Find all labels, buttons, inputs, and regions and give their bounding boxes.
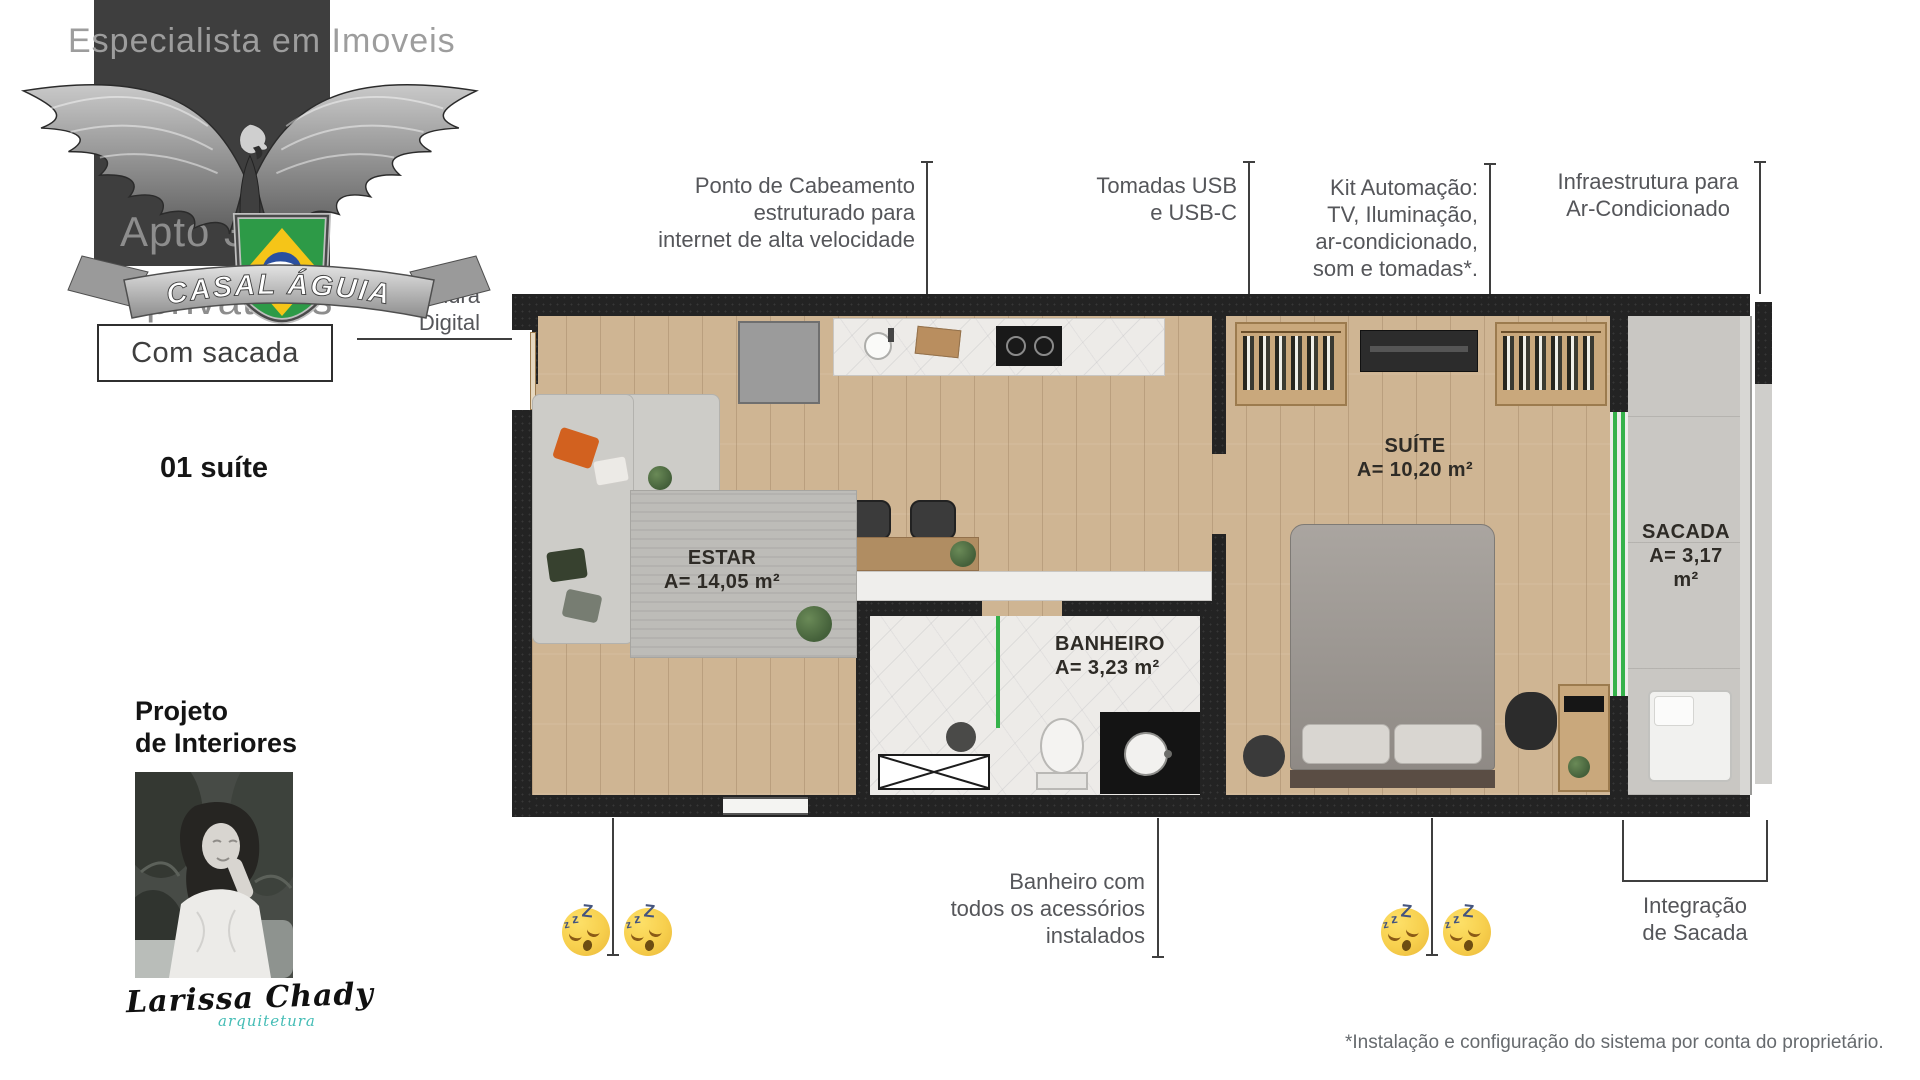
pointer-tick (1152, 956, 1164, 958)
callout-line: ar-condicionado, (1275, 228, 1478, 255)
entry-door-opening (512, 330, 532, 410)
floor-plan: ESTAR A= 14,05 m² BANHEIRO A= 3,23 m² SU… (512, 294, 1772, 817)
callout-infraestrutura-ar: Infraestrutura para Ar-Condicionado (1548, 168, 1748, 222)
bed-headboard (1290, 770, 1495, 788)
emoji-z: z (1452, 912, 1460, 926)
console-soundbar (1370, 346, 1468, 352)
callout-line: todos os acessórios (925, 895, 1145, 922)
callout-banheiro-acessorios: Banheiro com todos os acessórios instala… (925, 868, 1145, 949)
floorplan-marketing-page: Especialista em Imoveis Apto 35m² privat… (0, 0, 1920, 1080)
badge-label: Com sacada (131, 337, 299, 370)
sleeping-face-emoji: z z Z (624, 908, 672, 956)
wall-suite-divider-upper (1212, 316, 1226, 454)
cooktop-burner (1034, 336, 1054, 356)
integracao-bracket (1622, 820, 1768, 882)
closet-left (1235, 322, 1347, 406)
toilet-tank (1036, 772, 1088, 790)
room-label-estar: ESTAR A= 14,05 m² (642, 546, 802, 594)
emoji-z: z (1390, 912, 1398, 926)
callout-line: som e tomadas*. (1275, 255, 1478, 282)
project-title: Projeto de Interiores (135, 695, 297, 759)
wall-balcony-bottom (1610, 696, 1628, 795)
wall-balcony-top (1610, 316, 1628, 412)
closet-right (1495, 322, 1607, 406)
callout-line: Infraestrutura para (1548, 168, 1748, 195)
callout-integracao-sacada: Integração de Sacada (1617, 892, 1773, 946)
bed-pillow (1394, 724, 1482, 764)
sleeping-face-emoji: z z Z (1381, 908, 1429, 956)
callout-kit-automacao: Kit Automação: TV, Iluminação, ar-condic… (1275, 174, 1478, 282)
wall-bathroom-left (856, 600, 870, 795)
floor-plant (796, 606, 832, 642)
callout-line: Banheiro com (925, 868, 1145, 895)
emoji-z: z (571, 912, 579, 926)
brand-ribbon: CASAL ÁGUIA (64, 244, 494, 332)
room-name: BANHEIRO (1055, 632, 1205, 656)
room-area: A= 10,20 m² (1345, 458, 1485, 482)
kitchen-cabinet-box (738, 321, 820, 404)
floor-plant (648, 466, 672, 490)
vanity-sink (1124, 732, 1168, 776)
bar-chair (910, 500, 956, 540)
emoji-z: Z (1400, 901, 1413, 920)
callout-line: Kit Automação: (1275, 174, 1478, 201)
emoji-z: Z (643, 901, 656, 920)
callout-line: Ponto de Cabeamento (635, 172, 915, 199)
table-plant (950, 541, 976, 567)
wall-bathroom-top-left (868, 600, 982, 616)
callout-line: Tomadas USB (1040, 172, 1237, 199)
wall-top (512, 294, 1750, 316)
wall-suite-divider-lower (1212, 534, 1226, 600)
pointer-tick (1243, 161, 1255, 163)
signature-role: arquitetura (218, 1012, 316, 1030)
pointer-line-bed (1431, 818, 1433, 956)
wall-bottom (512, 795, 1750, 817)
pointer-tick (921, 161, 933, 163)
callout-line: instalados (925, 922, 1145, 949)
footnote-text: *Instalação e configuração do sistema po… (1345, 1032, 1884, 1054)
svg-text:CASAL ÁGUIA: CASAL ÁGUIA (164, 268, 394, 311)
pointer-line-infraestrutura (1759, 162, 1761, 294)
bathroom-stool (946, 722, 976, 752)
suite-count-label: 01 suíte (160, 452, 268, 485)
sliding-door-track-green (1621, 412, 1625, 696)
room-name: SUÍTE (1345, 434, 1485, 458)
bed-pillow (1302, 724, 1390, 764)
room-label-suite: SUÍTE A= 10,20 m² (1345, 434, 1485, 482)
callout-tomadas-usb: Tomadas USB e USB-C (1040, 172, 1237, 226)
callout-line: estruturado para (635, 199, 915, 226)
sleeping-face-emoji: z z Z (1443, 908, 1491, 956)
vanity-faucet (1164, 750, 1172, 758)
room-label-banheiro: BANHEIRO A= 3,23 m² (1055, 632, 1205, 680)
balcony-cushion (1654, 696, 1694, 726)
desk-chair (1505, 692, 1557, 750)
wall-bathroom-right (1200, 600, 1226, 795)
sliding-door-track-green (1613, 412, 1617, 696)
desk-plant (1568, 756, 1590, 778)
pointer-line-tomadas (1248, 162, 1250, 294)
pointer-line-fechadura (357, 338, 513, 340)
ottoman (1243, 735, 1285, 777)
callout-line: Integração (1617, 892, 1773, 919)
shower-glass-green (996, 616, 1000, 728)
balcony-railing (1740, 316, 1752, 795)
shower-mat (878, 754, 990, 790)
pointer-line-cabeamento (926, 162, 928, 294)
cooktop-burner (1006, 336, 1026, 356)
window-bottom (723, 797, 808, 815)
callout-cabeamento: Ponto de Cabeamento estruturado para int… (635, 172, 915, 253)
kitchen-faucet (888, 328, 894, 342)
toilet-bowl (1040, 718, 1084, 774)
room-name: SACADA (1636, 520, 1736, 544)
ribbon-text: CASAL ÁGUIA (164, 268, 394, 311)
desk-radio (1564, 696, 1604, 712)
cutting-board (915, 326, 962, 358)
emoji-z: z (633, 912, 641, 926)
project-title-line: de Interiores (135, 727, 297, 759)
emoji-z: Z (1462, 901, 1475, 920)
sleeping-face-emoji: z z Z (562, 908, 610, 956)
room-label-sacada: SACADA A= 3,17 m² (1636, 520, 1736, 592)
project-title-line: Projeto (135, 695, 297, 727)
room-area: A= 14,05 m² (642, 570, 802, 594)
room-area: A= 3,23 m² (1055, 656, 1205, 680)
pointer-line-banheiro (1157, 818, 1159, 958)
callout-line: Ar-Condicionado (1548, 195, 1748, 222)
callout-line: e USB-C (1040, 199, 1237, 226)
pointer-tick (1484, 163, 1496, 165)
callout-line: internet de alta velocidade (635, 226, 915, 253)
wall-bathroom-top-right (1062, 600, 1212, 616)
pillow-green (546, 548, 588, 583)
architect-photo (135, 772, 293, 978)
exterior-glass-strip (1755, 384, 1772, 784)
callout-line: TV, Iluminação, (1275, 201, 1478, 228)
pointer-line-automacao (1489, 164, 1491, 297)
pointer-line-sofa (612, 818, 614, 956)
callout-line: de Sacada (1617, 919, 1773, 946)
room-area: A= 3,17 m² (1636, 544, 1736, 592)
room-name: ESTAR (642, 546, 802, 570)
com-sacada-badge: Com sacada (97, 324, 333, 382)
emoji-z: Z (581, 901, 594, 920)
exterior-wall-strip (1755, 302, 1772, 384)
pointer-tick (1754, 161, 1766, 163)
